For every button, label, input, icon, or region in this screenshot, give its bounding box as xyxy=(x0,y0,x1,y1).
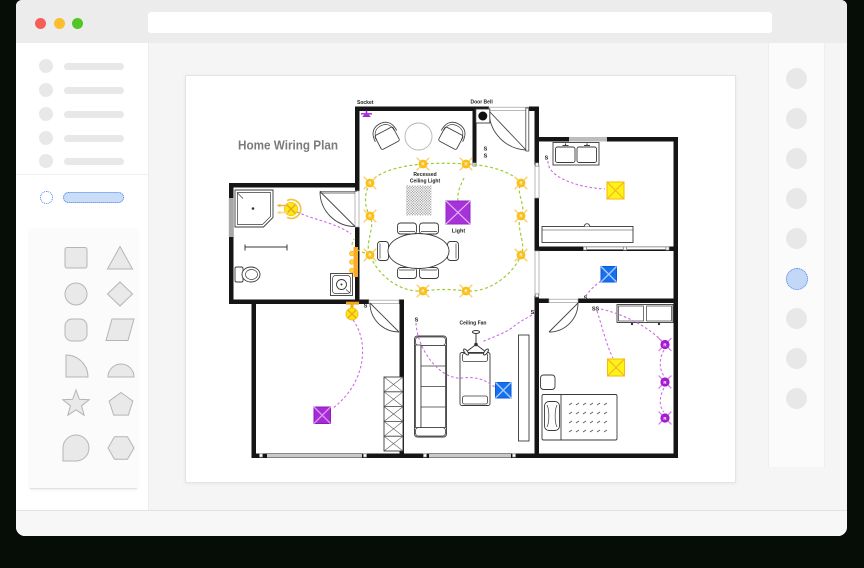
svg-text:R: R xyxy=(519,214,522,219)
svg-text:Ceiling Fan: Ceiling Fan xyxy=(460,321,487,327)
svg-text:R: R xyxy=(519,253,522,258)
svg-text:Ceiling Light: Ceiling Light xyxy=(410,179,441,185)
svg-text:R: R xyxy=(368,181,371,186)
svg-text:S: S xyxy=(484,154,488,160)
svg-text:R: R xyxy=(421,289,424,294)
svg-text:R: R xyxy=(368,253,371,258)
svg-text:R: R xyxy=(421,162,424,167)
svg-text:Door Bell: Door Bell xyxy=(471,100,494,106)
svg-text:Light: Light xyxy=(452,229,466,235)
svg-text:R: R xyxy=(368,214,371,219)
svg-text:R: R xyxy=(464,162,467,167)
svg-text:SS: SS xyxy=(592,307,600,313)
svg-text:R: R xyxy=(519,181,522,186)
svg-text:S: S xyxy=(415,318,419,324)
svg-text:S: S xyxy=(545,156,549,162)
svg-text:Socket: Socket xyxy=(357,100,374,106)
svg-text:Recessed: Recessed xyxy=(413,172,436,178)
svg-text:S: S xyxy=(531,310,535,316)
svg-text:S: S xyxy=(584,296,588,302)
svg-text:S: S xyxy=(484,147,488,153)
svg-text:R: R xyxy=(464,289,467,294)
svg-text:Home Wiring Plan: Home Wiring Plan xyxy=(238,138,338,153)
svg-text:S: S xyxy=(364,304,368,310)
